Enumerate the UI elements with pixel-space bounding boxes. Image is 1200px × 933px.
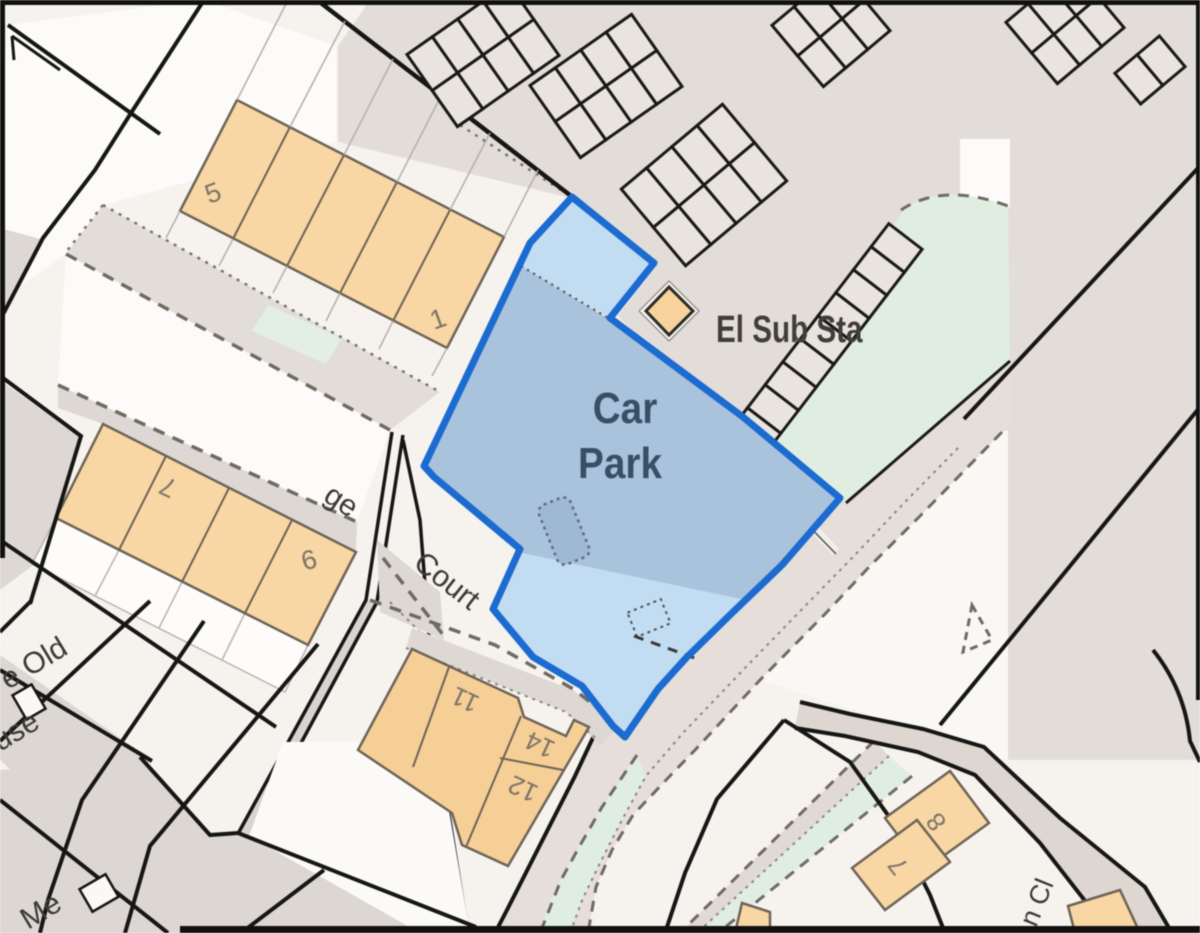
svg-text:Park: Park	[578, 438, 663, 488]
svg-text:El Sub Sta: El Sub Sta	[716, 309, 863, 351]
svg-text:Car: Car	[593, 383, 658, 433]
